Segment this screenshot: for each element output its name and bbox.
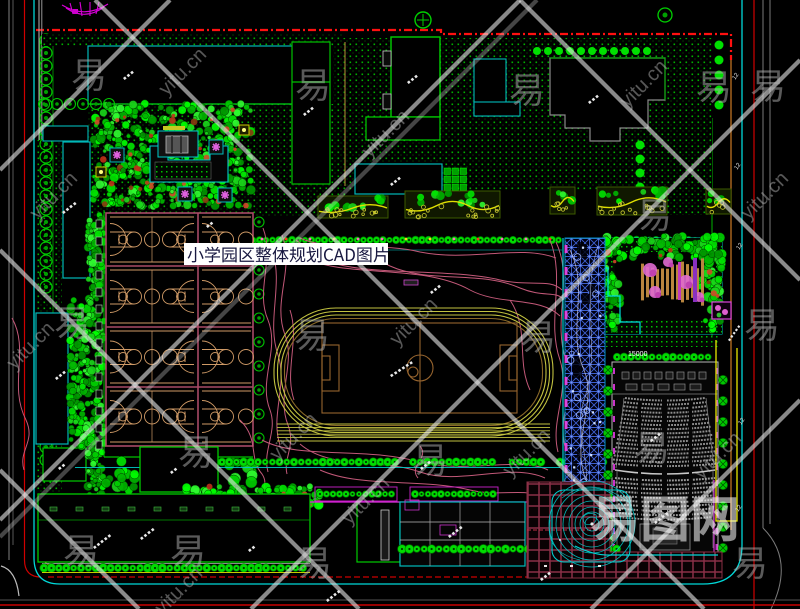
svg-text:15000: 15000 — [628, 351, 648, 358]
